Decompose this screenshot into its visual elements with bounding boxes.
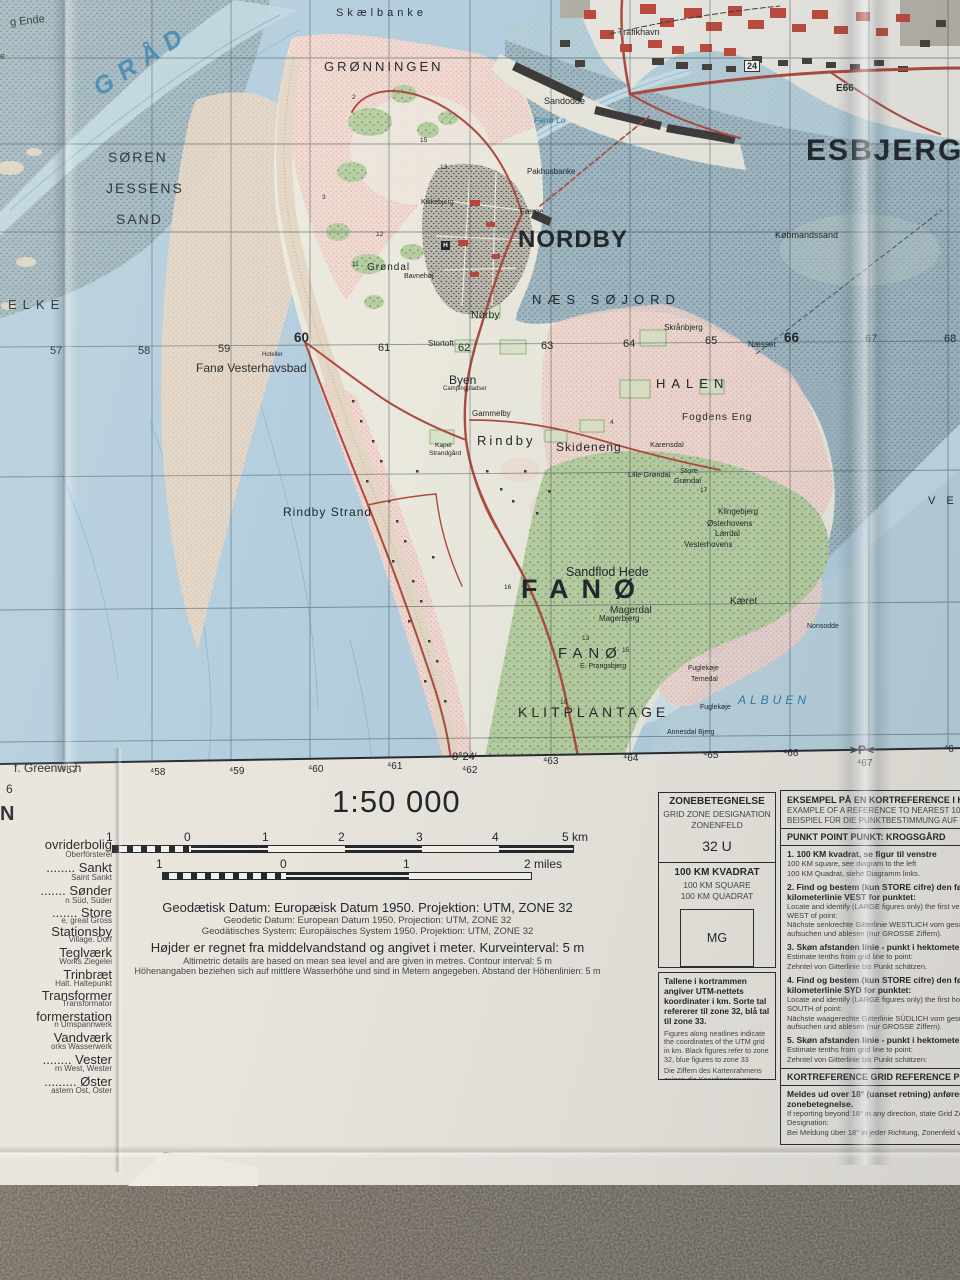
label-groendal: Grøndal [367, 263, 410, 273]
ref-title-english: EXAMPLE OF A REFERENCE TO NEAREST 100 ME… [787, 806, 960, 815]
spot-height: 3 [322, 195, 326, 202]
legend-soender-sub: n Süd, Süder [65, 897, 112, 905]
legend-teglvaerk-sub: Works Ziegelei [59, 958, 112, 966]
label-store-groendal-2: Grøndal [674, 477, 701, 485]
label-elke-fragment: ELKE [8, 298, 65, 311]
margin-fragment-n: N [0, 804, 14, 824]
label-skaelbanke: Skælbanke [336, 8, 427, 19]
label-oesterhovens: Østerhovens [707, 520, 752, 528]
scale-bar-segment [345, 846, 422, 852]
margin-easting-464: ⁴64 [623, 754, 638, 764]
label-trafikhavn: Trafikhavn [618, 28, 660, 37]
ref-point-line: PUNKT POINT PUNKT: KROGSGÅRD [787, 832, 960, 842]
grid-easting-58: 58 [138, 346, 150, 357]
label-bavnehoej: Bavnehøj [404, 273, 434, 280]
ref-title-danish: EKSEMPEL PÅ EN KORTREFERENCE I HEKTOMETE… [787, 795, 960, 805]
zone-value: 32 U [659, 838, 775, 854]
legend-oester-sub: astern Ost, Oster [51, 1087, 112, 1095]
label-fanoe-small: FANØ [558, 646, 623, 661]
spot-height: 13 [582, 636, 589, 643]
label-campingpladser: Campingpladser [443, 386, 487, 392]
legend-skovriderbolig-sub: Oberförsterei [65, 851, 112, 859]
ref-step-2: 2. Find og bestem (kun STORE cifre) den … [787, 882, 960, 939]
margin-easting-459: ⁴59 [229, 767, 244, 777]
legend-vandvaerk-sub: orks Wasserwerk [51, 1043, 112, 1051]
margin-longitude: 8°24′ [452, 752, 477, 763]
margin-easting-460: ⁴60 [308, 765, 323, 775]
margin-fragment-6: 6 [6, 783, 13, 795]
label-klitplantage: KLITPLANTAGE [518, 705, 669, 719]
label-vesterhovens: Vesterhovens [684, 541, 732, 549]
spot-height: 15 [622, 648, 629, 655]
ref-step-4-german: Nächste waagerechte Gitterlinie SÜDLICH … [787, 1015, 960, 1033]
spot-height: 4 [610, 420, 614, 427]
km-label-3: 3 [416, 831, 423, 843]
margin-easting-458: ⁴58 [150, 768, 165, 778]
label-stortoft: Stortoft [428, 340, 454, 348]
datum-note-german: Geodätisches System: Europäisches System… [115, 927, 620, 937]
square-title-danish: 100 KM KVADRAT [659, 867, 775, 878]
ref-step-2-danish: 2. Find og bestem (kun STORE cifre) den … [787, 882, 960, 902]
ref-step-5: 5. Skøn afstanden linie - punkt i hektom… [787, 1035, 960, 1065]
height-note-english: Altimetric details are based on mean sea… [115, 957, 620, 966]
label-hoteller: Hoteller [262, 352, 283, 358]
ref-step-4-english: Locate and identify (LARGE figures only)… [787, 996, 960, 1014]
grid-easting-65: 65 [705, 336, 717, 347]
scale-bar-segment [286, 873, 409, 879]
spot-height: 15 [420, 138, 427, 145]
grid-easting-60: 60 [294, 331, 309, 345]
label-kikkebjerg: Kikkebjerg [421, 199, 454, 206]
label-fogdens-eng: Fogdens Eng [682, 413, 753, 423]
reference-example-panel: EKSEMPEL PÅ EN KORTREFERENCE I HEKTOMETE… [780, 790, 960, 1145]
label-jessens: JESSENS [106, 181, 184, 195]
label-ve-partial: V E [928, 496, 958, 507]
ref-step-4: 4. Find og bestem (kun STORE cifre) den … [787, 975, 960, 1032]
label-sand: SAND [116, 212, 163, 226]
datum-note-english: Geodetic Datum: European Datum 1950. Pro… [115, 916, 620, 926]
grid-easting-67: 67 [865, 334, 877, 345]
grid-easting-64: 64 [623, 339, 635, 350]
ref-step-1: 1. 100 KM kvadrat, se figur til venstre … [787, 849, 960, 879]
square-title-english: 100 KM SQUARE [659, 880, 775, 890]
ref-title-german: BEISPIEL FÜR DIE PUNKTBESTIMMUNG AUF VOL… [787, 816, 960, 825]
margin-p-mark: >P< [850, 744, 875, 756]
ref-step-5-danish: 5. Skøn afstanden linie - punkt i hektom… [787, 1035, 960, 1045]
label-laerdal: Lærdal [715, 530, 740, 538]
spot-height: 17 [700, 488, 707, 495]
mi-label-2: 2 miles [524, 858, 562, 870]
legend-trinbraet-sub: Halt. Haltepunkt [55, 980, 112, 988]
label-esbjerg: ESBJERG [806, 136, 960, 166]
label-kaeret: Kæret [730, 597, 757, 607]
label-nordby: NORDBY [518, 228, 628, 252]
label-skraanbjerg: Skrånbjerg [664, 324, 703, 332]
zone-title-danish: ZONEBETEGNELSE [659, 796, 775, 807]
margin-easting-466: ⁴66 [783, 749, 798, 759]
grid-easting-59: 59 [218, 344, 230, 355]
divider [781, 845, 960, 846]
neatline-note-english: Figures along neatlines indicate the coo… [664, 1030, 770, 1065]
label-klingebjerg: Klingebjerg [718, 508, 758, 516]
label-magerbjerg: Magerbjerg [599, 615, 639, 623]
zone-title-english: GRID ZONE DESIGNATION [659, 809, 775, 819]
km-scale-bar [112, 845, 574, 853]
zone-title-german: ZONENFELD [659, 820, 775, 830]
legend-vester-sub: rn West, Wester [55, 1065, 112, 1073]
ref-step-1-english: 100 KM square, see diagram to the left [787, 860, 960, 869]
label-strandgaard: Strandgård [429, 451, 461, 458]
label-ternedal: Ternedal [691, 676, 718, 683]
label-pakhusbanke: Pakhusbanke [527, 168, 575, 176]
grid-easting-66: 66 [784, 331, 799, 345]
label-halen: HALEN [656, 377, 729, 390]
hospital-icon: H [441, 241, 450, 250]
label-lille-groendal: Lille Grøndal [628, 471, 671, 479]
label-kapel: Kapel [435, 443, 452, 450]
label-gammelby: Gammelby [472, 410, 511, 418]
ref-step-5-german: Zehntel von Gitterlinie bis Punkt schätz… [787, 1056, 960, 1065]
spot-height: 11 [352, 262, 359, 269]
label-karensdal: Karensdal [650, 441, 684, 449]
km-label-0: 0 [184, 831, 191, 843]
ref-step-3-german: Zehntel von Gitterlinie bis Punkt schätz… [787, 963, 960, 972]
label-fanoe-vesterhavsbad: Fanø Vesterhavsbad [196, 362, 307, 374]
ref-step-2-german: Nächste senkrechte Gitterlinie WESTLICH … [787, 921, 960, 939]
grid-zone-panel: ZONEBETEGNELSE GRID ZONE DESIGNATION ZON… [658, 792, 776, 968]
scale-bar-extension [163, 873, 286, 879]
mi-label-0: 0 [280, 858, 287, 870]
ref-step-2-english: Locate and identify (LARGE figures only)… [787, 903, 960, 921]
scale-ratio: 1:50 000 [332, 786, 461, 817]
miles-scale-bar [162, 872, 532, 880]
margin-easting-468: ⁴6 [944, 745, 954, 755]
spot-height: 13 [440, 165, 447, 172]
label-sandodde: Sandodde [544, 97, 585, 106]
scale-bar-segment [409, 873, 531, 879]
neatline-figures-panel: Tallene i kortrammen angiver UTM-nettets… [658, 972, 776, 1080]
label-store-groendal-1: Store [680, 467, 698, 475]
scale-bar-extension [113, 846, 191, 852]
label-annesdal-bjerg: Annesdal Bjerg [667, 729, 714, 736]
divider [659, 862, 775, 863]
km-label-5: 5 km [562, 831, 588, 843]
label-naesset: Næsset [748, 341, 776, 349]
label-fuglekoeje-1: Fuglekøje [688, 665, 719, 672]
divider [781, 828, 960, 829]
ref-step-3: 3. Skøn afstanden linie - punkt i hektom… [787, 942, 960, 972]
label-fuglekoeje-2: Fuglekøje [700, 704, 731, 711]
ref-reporting-danish: Meldes ud over 18° (uanset retning) anfø… [787, 1089, 960, 1109]
label-albuen: ALBUEN [738, 694, 810, 706]
label-naes-soejord: NÆS SØJORD [532, 293, 681, 306]
ref-kortreference-line: KORTREFERENCE GRID REFERENCE PUNKTBESTIM… [787, 1072, 960, 1082]
height-note-danish: Højder er regnet fra middelvandstand og … [115, 941, 620, 954]
ref-step-5-english: Estimate tenths from grid line to point: [787, 1046, 960, 1055]
divider [781, 1085, 960, 1086]
legend-transformerstation-sub: n Umspannwerk [54, 1021, 112, 1029]
margin-easting-462: ⁴62 [462, 766, 477, 776]
height-note-german: Höhenangaben beziehen sich auf mittlere … [115, 967, 620, 976]
grid-easting-68: 68 [944, 334, 956, 345]
ref-reporting-german: Bei Meldung über 18° in jeder Richtung, … [787, 1129, 960, 1138]
scale-bar-segment [499, 846, 573, 852]
square-title-german: 100 KM QUADRAT [659, 891, 775, 901]
mi-label-1: 1 [403, 858, 410, 870]
label-soeren: SØREN [108, 150, 168, 164]
grid-easting-63: 63 [541, 341, 553, 352]
label-route-e66: E66 [836, 84, 854, 94]
spot-height: 2 [352, 95, 356, 102]
ref-reporting-note: Meldes ud over 18° (uanset retning) anfø… [787, 1089, 960, 1138]
margin-easting-465: ⁴65 [703, 751, 718, 761]
label-koebmandssand: Købmandssand [775, 231, 838, 240]
margin-easting-467: ⁴67 [857, 759, 872, 769]
label-byen: Byen [449, 374, 476, 386]
ref-step-3-danish: 3. Skøn afstanden linie - punkt i hektom… [787, 942, 960, 952]
label-skideneng: Skideneng [556, 441, 622, 453]
label-fragment-e: e [0, 52, 5, 61]
ref-step-3-english: Estimate tenths from grid line to point: [787, 953, 960, 962]
label-rindby: Rindby [477, 434, 535, 447]
spot-height: 16 [504, 585, 511, 592]
legend-stationsby-sub: Village. Dorf [69, 936, 112, 944]
ref-step-1-german: 100 KM Quadrat, siehe Diagramm links. [787, 870, 960, 879]
neatline-note-german: Die Ziffern des Kartenrahmens zeigen die… [664, 1067, 770, 1080]
km-label-2: 2 [338, 831, 345, 843]
ref-step-1-danish: 1. 100 KM kvadrat, se figur til venstre [787, 849, 960, 859]
label-fanoe-big: FANØ [521, 576, 648, 603]
scale-bar-segment [422, 846, 499, 852]
scale-bar-segment [191, 846, 268, 852]
margin-easting-457: ⁴57 [62, 766, 77, 776]
margin-easting-463: ⁴63 [543, 757, 558, 767]
scale-bar-segment [268, 846, 345, 852]
margin-easting-461: ⁴61 [387, 762, 402, 772]
neatline-note-danish: Tallene i kortrammen angiver UTM-nettets… [664, 977, 770, 1027]
legend-transformer-sub: Transformator [62, 1000, 112, 1008]
spot-height: 12 [376, 232, 383, 239]
grid-easting-61: 61 [378, 343, 390, 354]
label-groenningen: GRØNNINGEN [324, 60, 444, 73]
mi-label-minus1: 1 [156, 858, 163, 870]
hundred-km-square-id-box: MG [680, 909, 754, 967]
divider [781, 1068, 960, 1069]
grid-easting-57: 57 [50, 346, 62, 357]
spot-height: 10 [560, 700, 567, 707]
grid-easting-62: 62 [458, 343, 470, 354]
road-number-shield: 24 [744, 60, 760, 72]
km-label-4: 4 [492, 831, 499, 843]
km-label-1: 1 [262, 831, 269, 843]
label-noerby: Nørby [471, 310, 500, 321]
datum-note-danish: Geodætisk Datum: Europæisk Datum 1950. P… [115, 901, 620, 914]
legend-sankt-sub: Saint Sankt [71, 874, 112, 882]
ref-step-4-danish: 4. Find og bestem (kun STORE cifre) den … [787, 975, 960, 995]
label-rindby-strand: Rindby Strand [283, 506, 372, 518]
label-prangsbjerg: E. Prangsbjerg [580, 663, 626, 670]
photo-of-paper-map: g Ende e GRÅD Skælbanke GRØNNINGEN SØREN… [0, 0, 960, 1280]
label-fanoe-lo: Fanø Lo [534, 116, 566, 125]
label-nonsodde: Nonsodde [807, 623, 839, 630]
ref-reporting-english: If reporting beyond 18° in any direction… [787, 1110, 960, 1128]
label-faerge: Færge [520, 208, 544, 216]
